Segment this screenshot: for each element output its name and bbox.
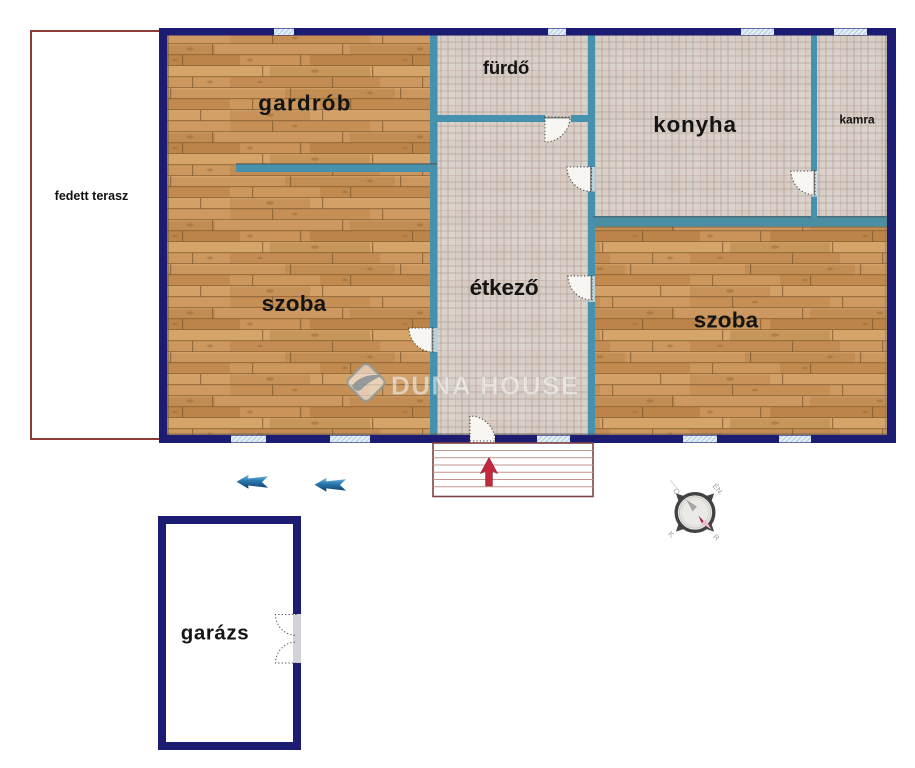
svg-text:szoba: szoba [262,291,327,316]
svg-text:fedett terasz: fedett terasz [55,189,129,203]
svg-text:étkező: étkező [470,275,539,300]
svg-text:kamra: kamra [839,113,875,127]
svg-text:szoba: szoba [694,308,759,333]
svg-text:fürdő: fürdő [483,57,529,78]
svg-text:gardrób: gardrób [258,91,351,116]
svg-text:garázs: garázs [181,622,250,645]
svg-text:konyha: konyha [653,112,737,137]
svg-text:DUNA HOUSE: DUNA HOUSE [391,371,580,401]
